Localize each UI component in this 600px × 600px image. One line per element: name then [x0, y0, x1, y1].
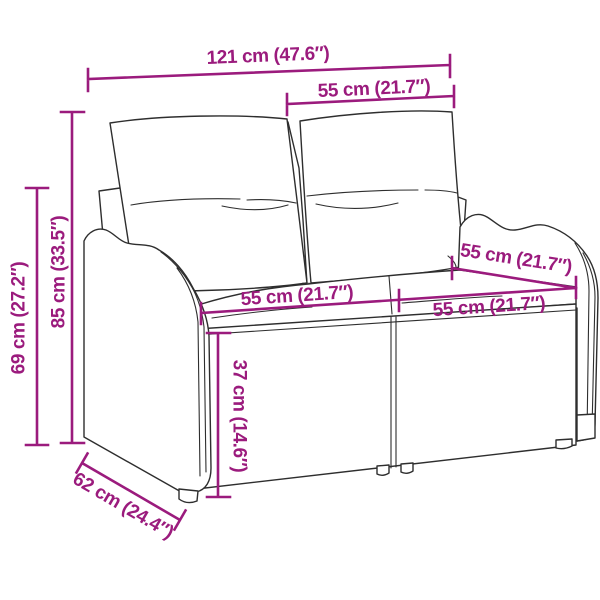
left-armrest-foot: [179, 489, 198, 503]
foot-mid-right: [401, 463, 413, 473]
dim-overall-height: 85 cm (33.5″): [49, 112, 85, 443]
dim-overall-width-label: 121 cm (47.6″): [206, 43, 330, 69]
dim-seat-height-label: 37 cm (14.6″): [229, 360, 250, 473]
dim-overall-height-label: 85 cm (33.5″): [49, 216, 70, 329]
back-cushion-right: [300, 111, 465, 283]
dim-armrest-height: 69 cm (27.2″): [9, 188, 49, 445]
foot-mid-left: [377, 465, 389, 475]
dim-backrest-width: 55 cm (21.7″): [287, 76, 454, 115]
foot-right: [556, 439, 572, 449]
bench-dimension-diagram: 121 cm (47.6″) 55 cm (21.7″) 85 cm (33.5…: [0, 0, 600, 600]
right-armrest-base: [577, 414, 595, 441]
dim-armrest-height-label: 69 cm (27.2″): [9, 262, 30, 375]
